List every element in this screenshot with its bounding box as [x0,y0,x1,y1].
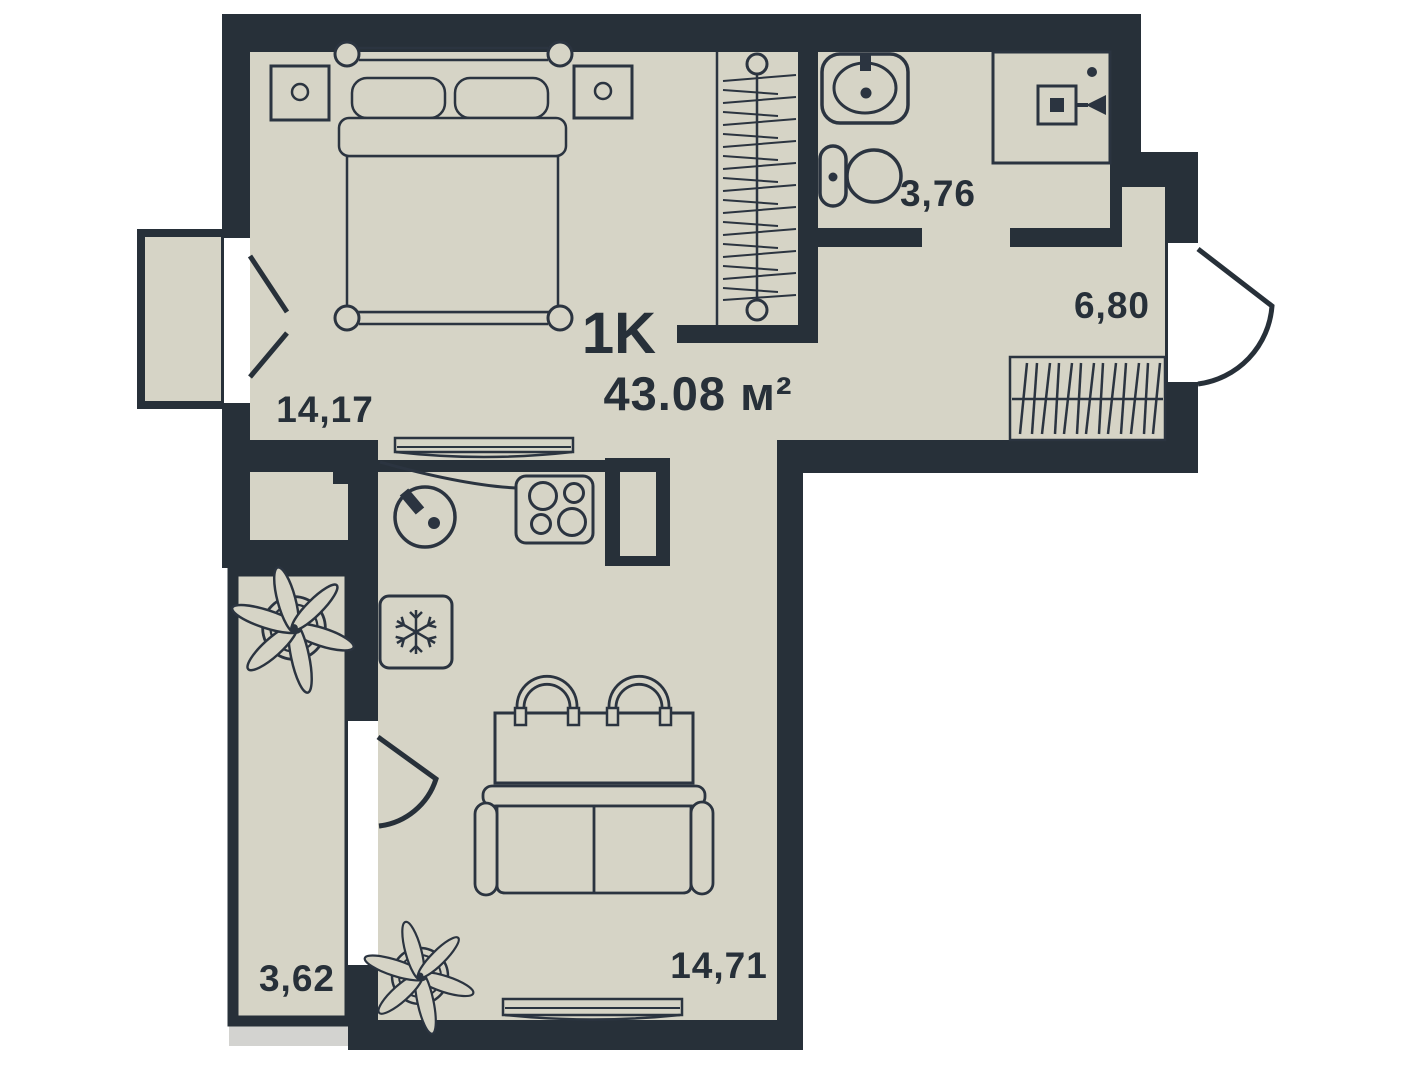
wall-nook-notch [333,472,350,484]
duct-bottom [605,556,670,566]
toilet-icon [820,146,901,206]
duct-left [605,472,620,566]
kitchen-sink-icon [395,487,455,547]
wall-step-top-right [1110,152,1198,187]
duct-top [605,458,670,472]
wall-bottom [348,1020,803,1050]
bedroom-area-label: 14,17 [276,389,374,430]
apartment-type-label: 1K [582,301,656,366]
wall-bedroom-bottom [222,440,378,472]
wall-closet-bottom [677,325,818,343]
hallway-wardrobe-icon [1010,357,1165,440]
bathroom-sink-icon [822,54,908,123]
nightstand-right-icon [574,66,632,118]
bathroom-area-label: 3,76 [900,173,976,214]
balcony-area-label: 3,62 [259,958,335,999]
wall-hall-bottom [777,440,1198,473]
balcony-shadow [229,1024,357,1046]
wall-bathroom-bottom-left [817,228,922,247]
total-area-label: 43.08 м² [603,367,792,420]
wall-nook-bottom [222,540,350,568]
wall-living-right [777,440,803,1050]
sofa-icon [475,786,713,895]
window-bay [141,233,225,405]
floor-plan: 1K 43.08 м² 14,17 3,76 6,80 14,71 3,62 [0,0,1416,1073]
entrance-door-swing [1198,249,1272,384]
nightstand-left-icon [271,66,329,120]
entrance-door-opening [1168,243,1198,382]
bedroom-window-opening [224,238,250,403]
hallway-area-label: 6,80 [1074,285,1150,326]
fridge-icon [380,596,452,668]
floor-plan-svg: 1K 43.08 м² 14,17 3,76 6,80 14,71 3,62 [0,0,1416,1073]
stove-icon [516,476,593,543]
wall-right-upper [1110,14,1141,152]
kitchen-living-area-label: 14,71 [670,945,768,986]
wall-bathroom-bottom-right [1010,228,1122,247]
duct-right [656,472,670,558]
balcony-door-opening [348,721,378,965]
wall-top [222,14,1141,52]
wall-bathroom-left [798,52,818,343]
